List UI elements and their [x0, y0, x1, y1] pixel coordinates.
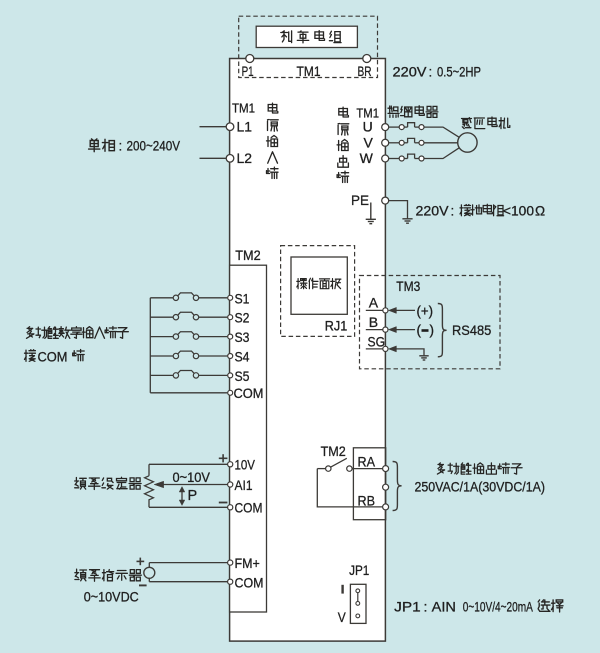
svg-text:AIN: AIN	[432, 599, 456, 615]
svg-text:PE: PE	[351, 192, 369, 208]
svg-text:P: P	[188, 488, 198, 504]
svg-text:0~10V/4~20mA: 0~10V/4~20mA	[463, 599, 534, 615]
svg-text:W: W	[360, 150, 374, 166]
svg-text:220V: 220V	[416, 204, 449, 219]
svg-text:AI1: AI1	[235, 477, 253, 493]
svg-text:S3: S3	[235, 329, 250, 345]
svg-text:BR: BR	[358, 63, 372, 79]
svg-text:Ω: Ω	[535, 204, 545, 219]
svg-text:COM: COM	[235, 575, 264, 591]
svg-text:S5: S5	[235, 368, 250, 384]
svg-text:RS485: RS485	[452, 322, 491, 338]
svg-text:P1: P1	[242, 63, 254, 79]
svg-text:TM2: TM2	[235, 247, 261, 263]
svg-text:TM1: TM1	[232, 102, 255, 116]
svg-text:TM1: TM1	[297, 63, 321, 79]
svg-text:): )	[430, 323, 435, 338]
svg-text::: :	[429, 65, 433, 80]
svg-text:V: V	[338, 609, 347, 625]
svg-text:A: A	[369, 295, 379, 311]
svg-text:B: B	[369, 314, 378, 330]
svg-text:(: (	[417, 323, 422, 338]
svg-text:TM2: TM2	[321, 443, 346, 459]
svg-text:JP1: JP1	[349, 562, 369, 578]
svg-text:220V: 220V	[393, 65, 427, 80]
svg-text:L2: L2	[237, 150, 253, 166]
svg-text::: :	[451, 204, 455, 219]
svg-text:COM: COM	[38, 350, 68, 365]
svg-text:U: U	[363, 119, 373, 135]
svg-text:0~10VDC: 0~10VDC	[84, 590, 139, 605]
svg-text:S2: S2	[235, 310, 250, 326]
svg-text:COM: COM	[235, 500, 263, 516]
svg-text:0~10V: 0~10V	[173, 470, 211, 485]
svg-text:L1: L1	[237, 119, 253, 135]
svg-text:COM: COM	[234, 385, 264, 401]
svg-text:FM+: FM+	[235, 555, 260, 571]
svg-text:RA: RA	[358, 454, 376, 470]
svg-text::: :	[119, 139, 123, 154]
svg-text:RJ1: RJ1	[325, 319, 348, 334]
svg-text:JP1: JP1	[394, 599, 421, 615]
svg-text:0.5~2HP: 0.5~2HP	[437, 65, 481, 80]
svg-text:(+): (+)	[417, 303, 434, 318]
svg-text:RB: RB	[358, 492, 376, 508]
svg-text::: :	[424, 599, 428, 615]
svg-text:V: V	[363, 134, 373, 150]
svg-text:TM3: TM3	[396, 278, 420, 294]
svg-text:SG: SG	[368, 334, 386, 350]
svg-text:<100: <100	[503, 204, 534, 219]
svg-text:250VAC/1A(30VDC/1A): 250VAC/1A(30VDC/1A)	[415, 479, 546, 495]
svg-text:S1: S1	[235, 290, 250, 306]
svg-text:200~240V: 200~240V	[127, 139, 181, 154]
svg-text:S4: S4	[235, 349, 250, 365]
svg-text:10V: 10V	[235, 456, 256, 472]
